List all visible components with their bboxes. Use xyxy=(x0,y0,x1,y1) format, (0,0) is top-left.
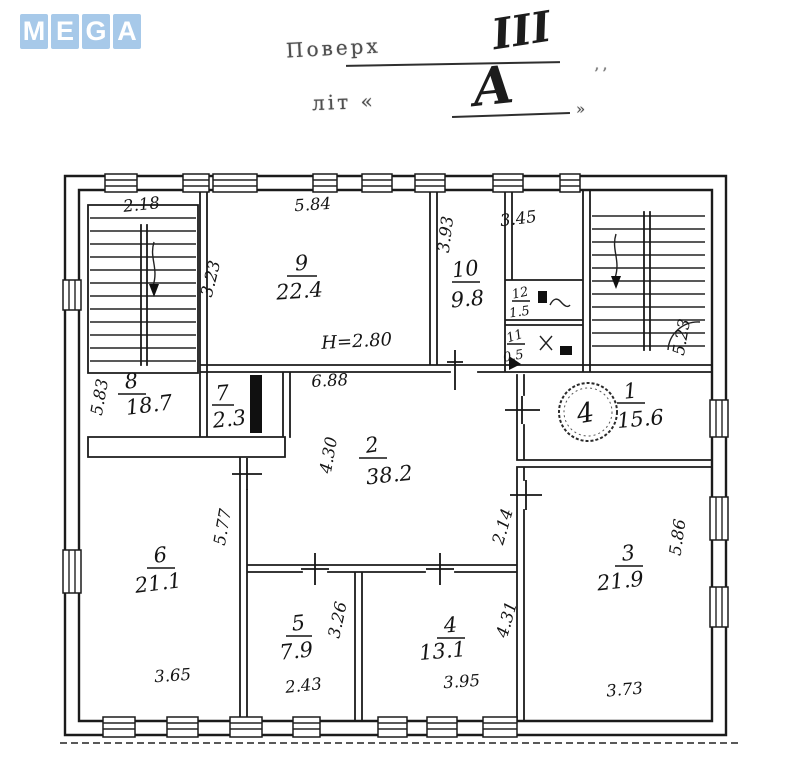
room-8-number: 8 xyxy=(123,368,139,393)
logo-letter: G xyxy=(82,14,110,49)
dim-room9-side: 3.23 xyxy=(197,259,224,299)
dim-room6-bottom: 3.65 xyxy=(154,665,192,687)
room-8-area: 18.7 xyxy=(124,390,174,420)
logo-letter: M xyxy=(20,14,48,49)
dim-room4-bottom: 3.95 xyxy=(443,671,481,693)
room-5-area: 7.9 xyxy=(278,637,314,664)
dim-room5-side: 3.26 xyxy=(325,600,351,640)
dim-room5-bottom: 2.43 xyxy=(283,674,323,697)
room-4-area: 13.1 xyxy=(418,637,467,665)
mega-logo: M E G A xyxy=(20,14,141,49)
stair-arrow-right xyxy=(615,234,617,278)
room-6-number: 6 xyxy=(152,542,168,567)
dim-hall-side: 4.30 xyxy=(316,435,341,475)
letter-close-quote: » xyxy=(576,100,588,118)
room-7-number: 7 xyxy=(215,380,231,405)
room-12-area: 1.5 xyxy=(508,304,531,322)
stair-divider-left xyxy=(141,225,147,365)
room-3-area: 21.9 xyxy=(595,567,645,596)
dim-room3-side-upper: 2.14 xyxy=(488,506,517,548)
floor-plan-drawing: 4 9 22.4 10 9.8 12 1.5 11 0.5 8 18.7 7 2… xyxy=(0,150,800,781)
stray-pen-mark: ’’ xyxy=(594,64,610,83)
dim-room8-side: 5.83 xyxy=(87,377,112,416)
room-10-area: 9.8 xyxy=(450,286,485,313)
room-4-number: 4 xyxy=(442,612,458,637)
floor-value-handwritten: III xyxy=(489,2,555,60)
room-6-area: 21.1 xyxy=(132,568,182,598)
dim-room10-side: 3.93 xyxy=(434,215,457,254)
logo-letter: E xyxy=(51,14,79,49)
letter-value-handwritten: А xyxy=(469,54,518,119)
room-1-number: 1 xyxy=(622,378,638,403)
room-5-number: 5 xyxy=(290,610,306,635)
dim-room10-top: 3.45 xyxy=(499,207,538,230)
dim-room6-side: 5.77 xyxy=(210,507,235,547)
room-2-area: 38.2 xyxy=(365,461,414,490)
room-11-area: 0.5 xyxy=(502,347,525,365)
outer-walls xyxy=(65,176,726,735)
room-7-area: 2.3 xyxy=(210,405,247,432)
logo-letter: A xyxy=(113,14,141,49)
room-1-area: 15.6 xyxy=(616,405,665,433)
room-2-number: 2 xyxy=(363,432,381,458)
room-10-number: 10 xyxy=(451,256,480,283)
dim-stair-right-side: 5.23 xyxy=(669,317,694,356)
dim-room9-top: 5.84 xyxy=(294,194,332,216)
apartment-stamp-number: 4 xyxy=(573,397,596,431)
room-9-number: 9 xyxy=(294,251,309,276)
room-3-number: 3 xyxy=(620,540,636,565)
ceiling-height-note: Н=2.80 xyxy=(320,329,393,354)
room-9-area: 22.4 xyxy=(274,277,323,304)
floor-label: Поверх xyxy=(285,34,381,63)
dim-hall-top: 6.88 xyxy=(311,370,349,391)
scanned-floorplan-sheet: M E G A Поверх III літ « А » ’’ xyxy=(0,0,800,781)
floor-underline xyxy=(346,61,560,67)
dim-stair-left: 2.18 xyxy=(121,193,161,216)
dim-room3-right: 5.86 xyxy=(666,518,690,557)
room-12-number: 12 xyxy=(511,285,530,303)
stair-arrow-left xyxy=(153,242,155,286)
windows-right-wall xyxy=(710,400,728,627)
stair-arrowhead-right xyxy=(611,276,621,289)
dim-room3-bottom: 3.73 xyxy=(605,678,643,700)
stair-treads-left xyxy=(90,218,196,361)
chimney-flue xyxy=(250,375,262,433)
letter-label: літ « xyxy=(312,89,377,115)
stair-arrowhead-left xyxy=(149,284,159,297)
